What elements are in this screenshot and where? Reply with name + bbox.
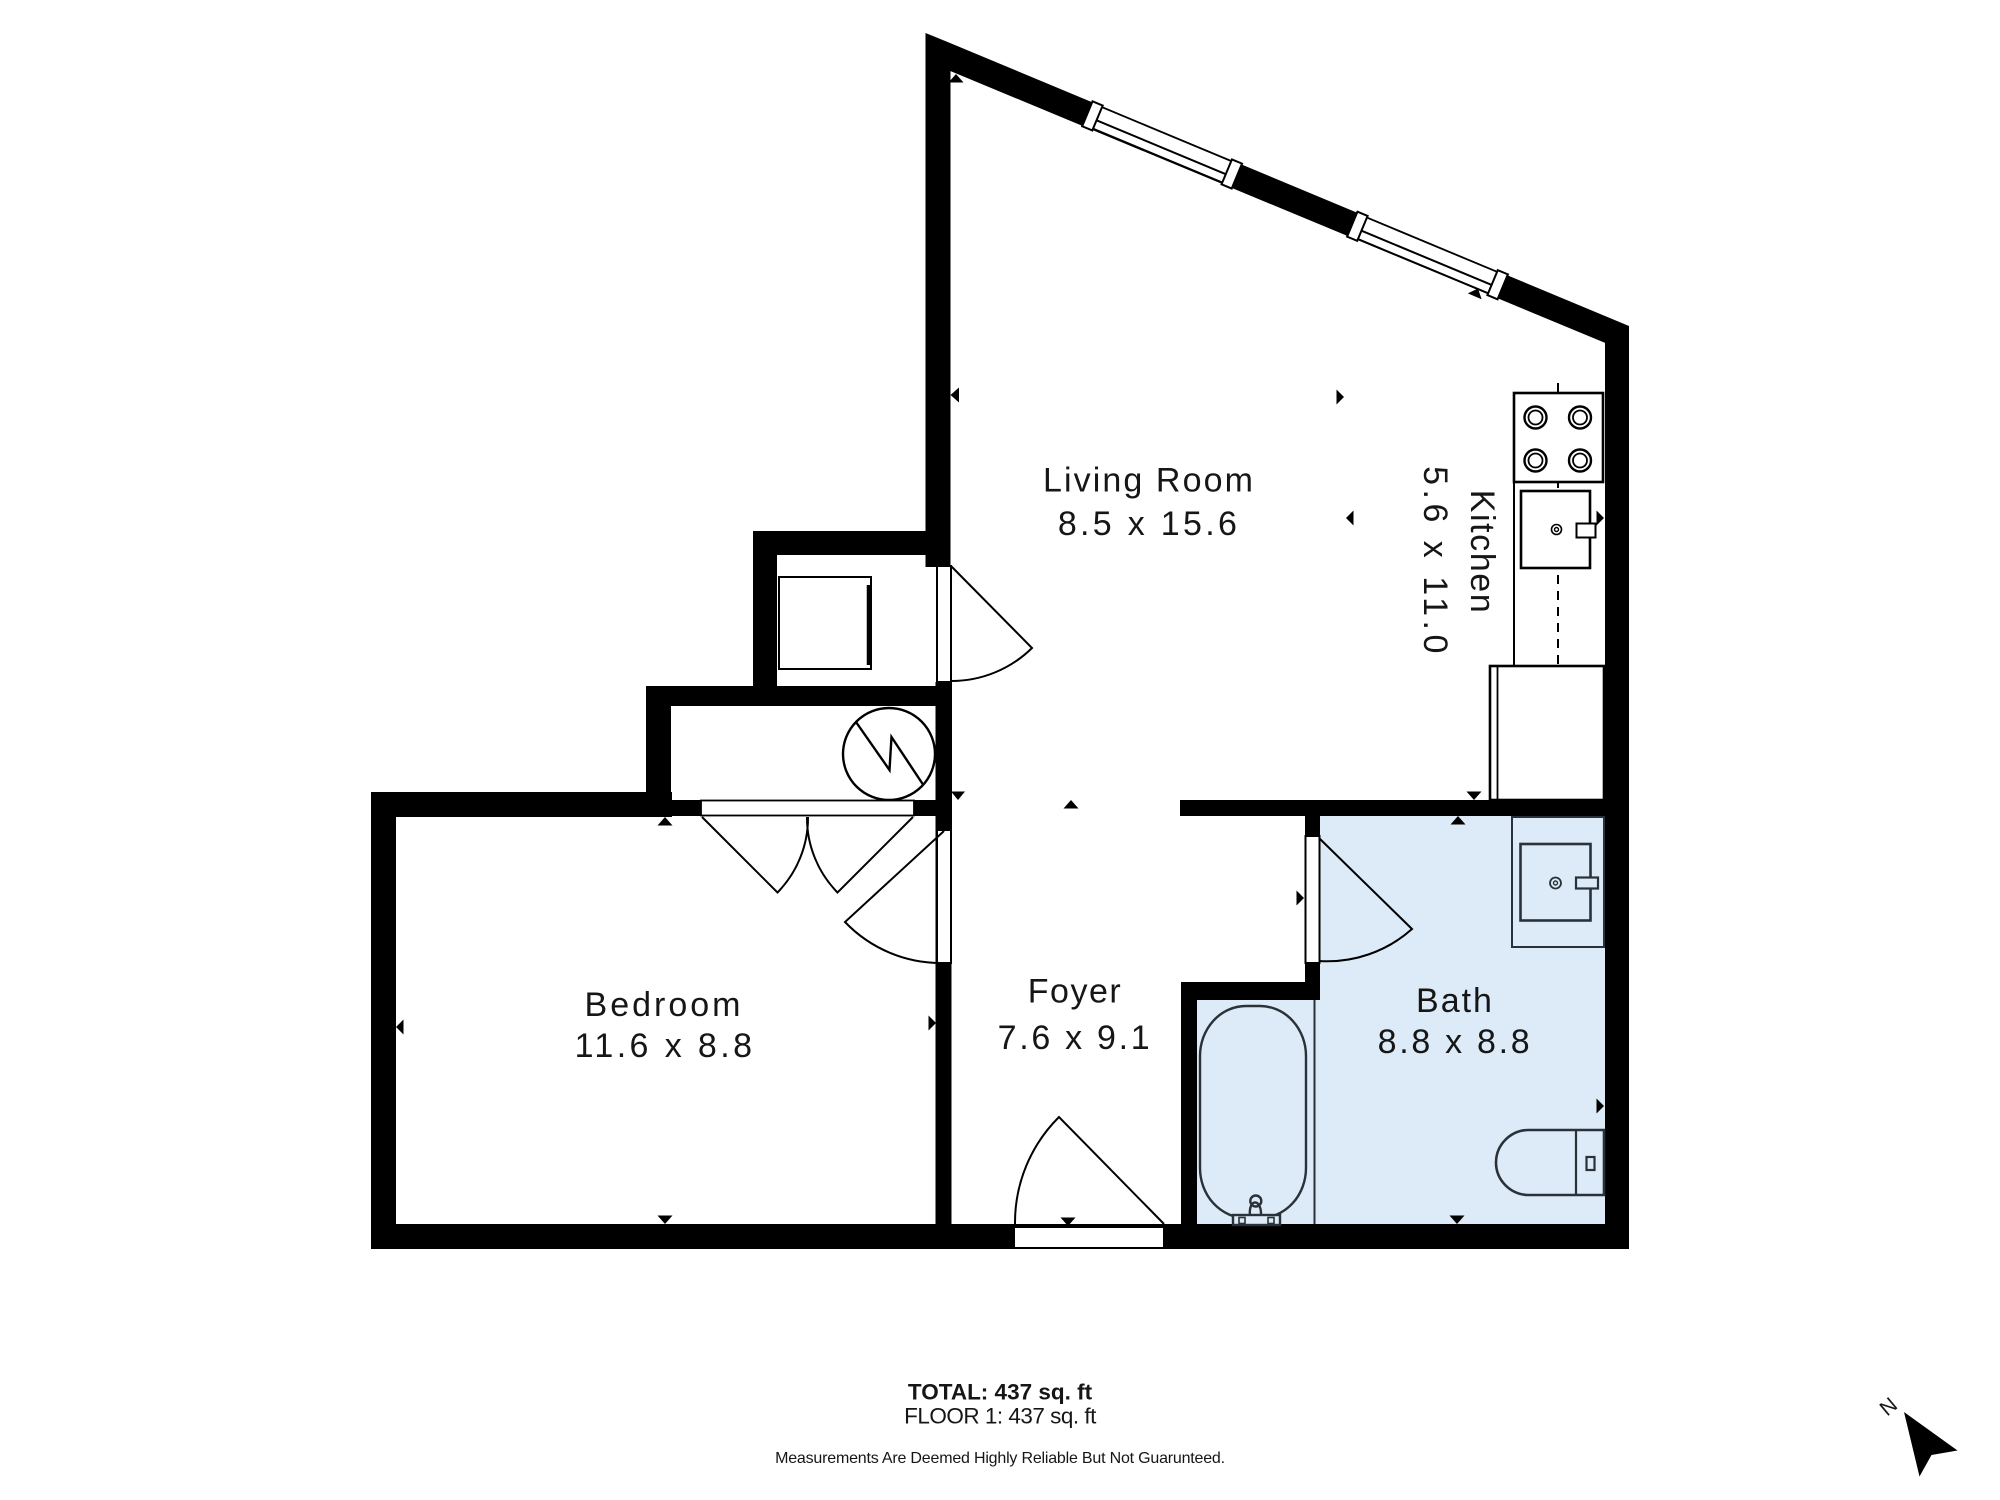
svg-text:Foyer: Foyer bbox=[1028, 973, 1122, 1011]
svg-text:Kitchen: Kitchen bbox=[1463, 490, 1501, 615]
svg-text:TOTAL: 437 sq. ft: TOTAL: 437 sq. ft bbox=[908, 1380, 1093, 1405]
svg-text:Living Room: Living Room bbox=[1043, 462, 1255, 500]
svg-text:FLOOR 1: 437 sq. ft: FLOOR 1: 437 sq. ft bbox=[904, 1404, 1097, 1429]
svg-text:8.8 x 8.8: 8.8 x 8.8 bbox=[1378, 1023, 1533, 1061]
svg-text:11.6 x 8.8: 11.6 x 8.8 bbox=[575, 1027, 756, 1065]
svg-text:7.6 x 9.1: 7.6 x 9.1 bbox=[998, 1019, 1153, 1057]
svg-text:Measurements Are Deemed Highly: Measurements Are Deemed Highly Reliable … bbox=[775, 1450, 1225, 1467]
svg-text:5.6 x 11.0: 5.6 x 11.0 bbox=[1416, 466, 1454, 658]
svg-text:Bedroom: Bedroom bbox=[585, 986, 744, 1024]
svg-text:8.5 x 15.6: 8.5 x 15.6 bbox=[1058, 505, 1240, 543]
svg-text:Bath: Bath bbox=[1416, 982, 1494, 1020]
